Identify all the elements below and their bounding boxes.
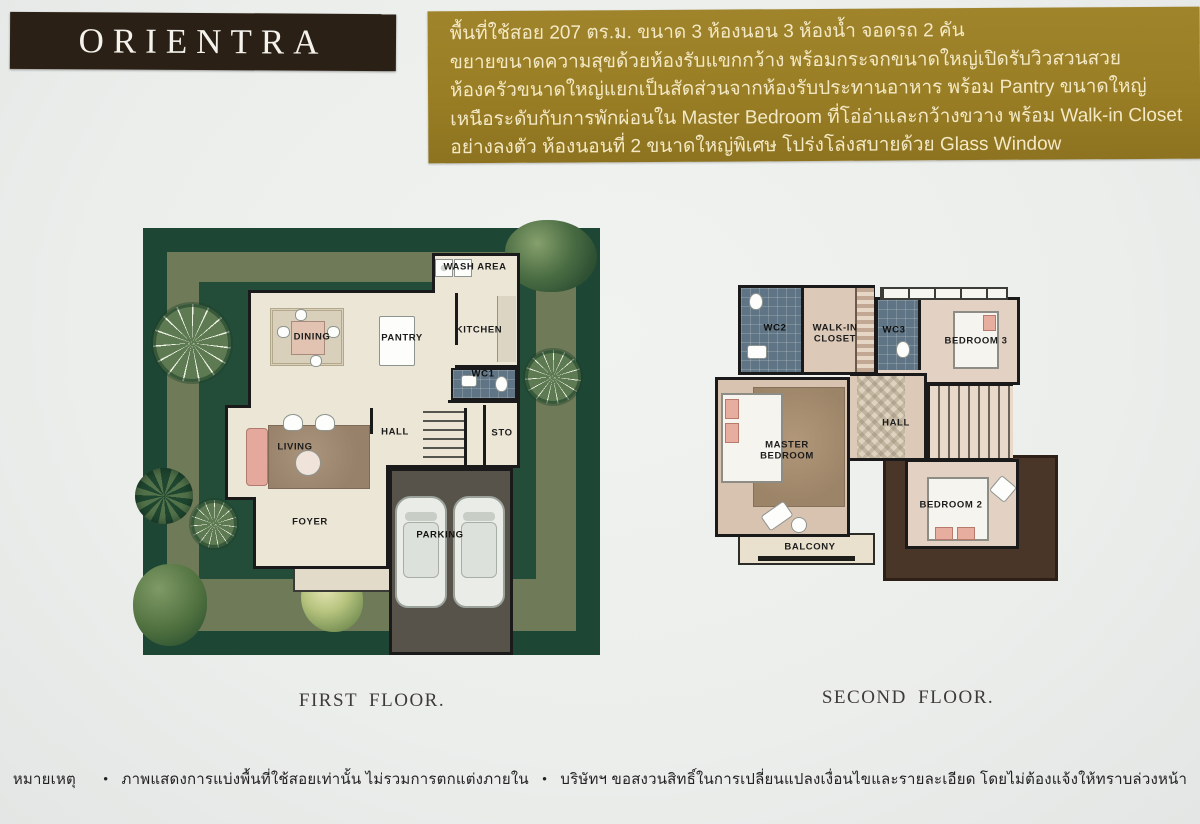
room-label-kitchen: KITCHEN (456, 325, 502, 336)
room-label-dining: DINING (294, 332, 331, 343)
round-tree-icon (191, 500, 237, 548)
bullet-icon: • (103, 771, 108, 786)
wall-segment (448, 400, 517, 403)
footer-note-label: หมายเหตุ (13, 771, 76, 788)
chair-icon (277, 326, 290, 338)
pillow-icon (935, 527, 953, 540)
entry-porch (293, 569, 397, 592)
room-label-hall: HALL (381, 427, 409, 438)
wall-segment (918, 300, 921, 370)
green-bush-icon (133, 564, 207, 646)
flower-bush-icon (509, 558, 585, 638)
brand-title: ORIENTRA (78, 21, 327, 62)
flower-bush-icon (149, 234, 231, 312)
stairs (423, 408, 467, 465)
sofa (246, 428, 268, 486)
coffee-table-icon (295, 450, 321, 476)
toilet-icon (495, 376, 508, 392)
pillow-icon (957, 527, 975, 540)
footer-disclaimer: หมายเหตุ • ภาพแสดงการแบ่งพื้นที่ใช้สอยเท… (0, 767, 1200, 791)
second-floor-plan: WC2 WALK-IN CLOSET WC3 BEDROOM 3 MASTER … (705, 283, 1060, 583)
chair-icon (310, 355, 322, 367)
chair-icon (295, 309, 307, 321)
room-label-storage: STO (491, 428, 512, 439)
pillow-icon (983, 315, 996, 331)
room-label-bedroom2: BEDROOM 2 (920, 500, 983, 511)
description-line: ห้องครัวขนาดใหญ่แยกเป็นสัดส่วนจากห้องรับ… (450, 73, 1200, 106)
description-line: ขยายขนาดความสุขด้วยห้องรับแขกกว้าง พร้อม… (450, 44, 1200, 77)
pillow-icon (725, 399, 739, 419)
first-floor-plan: WASH AREA KITCHEN PANTRY DINING WC1 HALL… (143, 228, 600, 655)
first-floor-caption: FIRST FLOOR. (262, 690, 482, 712)
wall-segment (370, 408, 373, 434)
room-label-wash-area: WASH AREA (443, 262, 506, 273)
round-tree-icon (525, 350, 581, 404)
room-label-hall2: HALL (882, 418, 910, 429)
description-gold-box: พื้นที่ใช้สอย 207 ตร.ม. ขนาด 3 ห้องนอน 3… (428, 7, 1200, 164)
stairs (927, 383, 1013, 461)
room-label-master-bedroom: MASTER BEDROOM (755, 441, 819, 462)
footer-disclaimer-rights: บริษัทฯ ขอสงวนสิทธิ์ในการเปลี่ยนแปลงเงื่… (560, 771, 1187, 788)
armchair-icon (315, 414, 335, 431)
window-row (880, 287, 1008, 300)
room-label-living: LIVING (277, 442, 312, 453)
toilet-icon (749, 293, 763, 310)
room-label-foyer: FOYER (292, 517, 328, 528)
palm-tree-icon (135, 468, 193, 524)
round-tree-icon (153, 304, 231, 382)
car-icon (395, 496, 447, 608)
description-line: อย่างลงตัว ห้องนอนที่ 2 ขนาดใหญ่พิเศษ โป… (450, 130, 1200, 163)
description-line: เหนือระดับกับการพักผ่อนใน Master Bedroom… (450, 101, 1200, 134)
wall-segment (483, 405, 486, 465)
armchair-icon (283, 414, 303, 431)
description-line: พื้นที่ใช้สอย 207 ตร.ม. ขนาด 3 ห้องนอน 3… (450, 16, 1200, 49)
room-label-parking: PARKING (416, 530, 463, 541)
room-label-bedroom3: BEDROOM 3 (945, 336, 1008, 347)
bullet-icon: • (542, 771, 547, 786)
room-label-walk-in-closet: WALK-IN CLOSET (804, 324, 866, 345)
car-icon (453, 496, 505, 608)
footer-disclaimer-usage: ภาพแสดงการแบ่งพื้นที่ใช้สอยเท่านั้น ไม่ร… (122, 771, 529, 788)
room-label-wc3: WC3 (883, 325, 906, 336)
side-table-icon (791, 517, 807, 533)
room-label-pantry: PANTRY (381, 333, 423, 344)
second-floor-caption: SECOND FLOOR. (798, 687, 1018, 709)
room-label-wc2: WC2 (764, 323, 787, 334)
toilet-icon (896, 341, 910, 358)
room-label-balcony: BALCONY (784, 542, 835, 553)
wall-segment (455, 293, 458, 345)
brand-title-bar: ORIENTRA (10, 12, 396, 71)
pillow-icon (725, 423, 739, 443)
bathtub-icon (747, 345, 767, 359)
room-label-wc1: WC1 (472, 369, 495, 380)
